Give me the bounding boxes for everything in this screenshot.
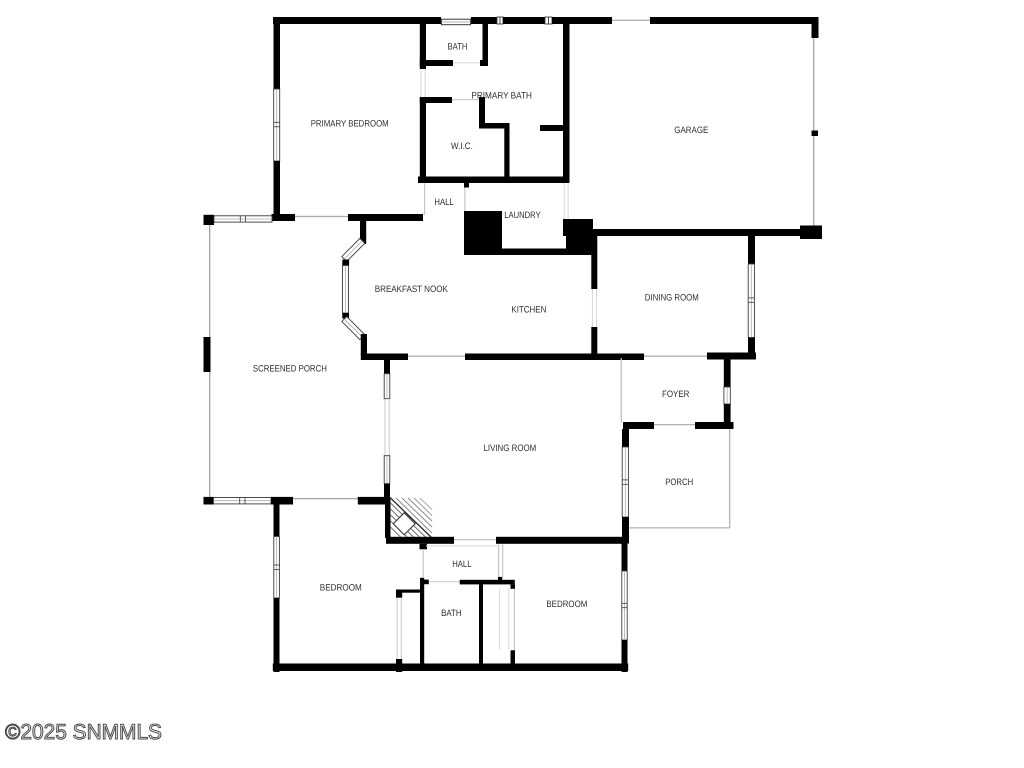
svg-text:HALL: HALL (452, 559, 471, 569)
svg-text:FOYER: FOYER (662, 389, 690, 399)
svg-text:BEDROOM: BEDROOM (320, 583, 362, 593)
svg-text:BATH: BATH (448, 41, 468, 51)
svg-text:DINING ROOM: DINING ROOM (645, 292, 699, 302)
svg-text:BEDROOM: BEDROOM (546, 599, 587, 609)
svg-text:HALL: HALL (434, 197, 453, 207)
svg-text:LAUNDRY: LAUNDRY (504, 210, 541, 220)
svg-text:©2025 SNMMLS: ©2025 SNMMLS (5, 720, 162, 744)
svg-text:PORCH: PORCH (665, 477, 693, 487)
svg-text:PRIMARY BATH: PRIMARY BATH (471, 91, 532, 101)
svg-text:BATH: BATH (441, 608, 462, 618)
svg-text:SCREENED PORCH: SCREENED PORCH (253, 363, 327, 373)
svg-text:PRIMARY BEDROOM: PRIMARY BEDROOM (311, 118, 389, 128)
svg-text:LIVING ROOM: LIVING ROOM (484, 443, 537, 453)
svg-text:BREAKFAST NOOK: BREAKFAST NOOK (375, 284, 449, 294)
svg-text:GARAGE: GARAGE (674, 125, 708, 135)
svg-text:W.I.C.: W.I.C. (451, 141, 473, 151)
svg-text:KITCHEN: KITCHEN (511, 304, 546, 314)
